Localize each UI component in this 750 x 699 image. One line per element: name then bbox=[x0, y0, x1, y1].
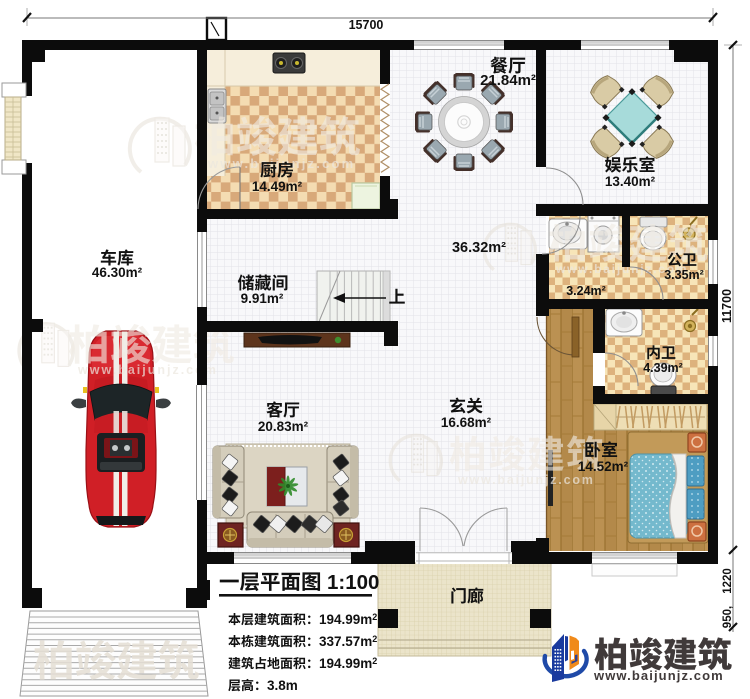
svg-text:9.91m²: 9.91m² bbox=[241, 291, 284, 306]
svg-text:194.99m2: 194.99m2 bbox=[319, 656, 377, 671]
svg-text:www.baijunjz.com: www.baijunjz.com bbox=[593, 668, 724, 683]
svg-text:337.57m2: 337.57m2 bbox=[319, 634, 377, 649]
svg-text:194.99m2: 194.99m2 bbox=[319, 612, 377, 627]
svg-text:3.35m²: 3.35m² bbox=[664, 268, 704, 282]
svg-text:46.30m²: 46.30m² bbox=[92, 265, 143, 280]
svg-text:11700: 11700 bbox=[720, 289, 734, 323]
svg-text:21.84m²: 21.84m² bbox=[480, 72, 536, 89]
svg-text:1220: 1220 bbox=[722, 568, 734, 594]
svg-text:www.baijunjz.com: www.baijunjz.com bbox=[77, 363, 218, 377]
svg-text:13.40m²: 13.40m² bbox=[605, 174, 656, 189]
svg-text:3.24m²: 3.24m² bbox=[566, 284, 606, 298]
svg-text:4.39m²: 4.39m² bbox=[643, 361, 683, 375]
svg-text:950,: 950, bbox=[722, 606, 734, 628]
svg-text:www.baijunjz.com: www.baijunjz.com bbox=[457, 473, 595, 487]
svg-text:15700: 15700 bbox=[349, 18, 384, 32]
svg-text:36.32m²: 36.32m² bbox=[452, 240, 506, 256]
svg-text:16.68m²: 16.68m² bbox=[441, 415, 492, 430]
svg-text:3.8m: 3.8m bbox=[267, 678, 298, 693]
svg-text:14.49m²: 14.49m² bbox=[252, 179, 303, 194]
svg-text:1:100: 1:100 bbox=[327, 571, 379, 594]
svg-text:14.52m²: 14.52m² bbox=[578, 459, 629, 474]
svg-text:20.83m²: 20.83m² bbox=[258, 419, 309, 434]
